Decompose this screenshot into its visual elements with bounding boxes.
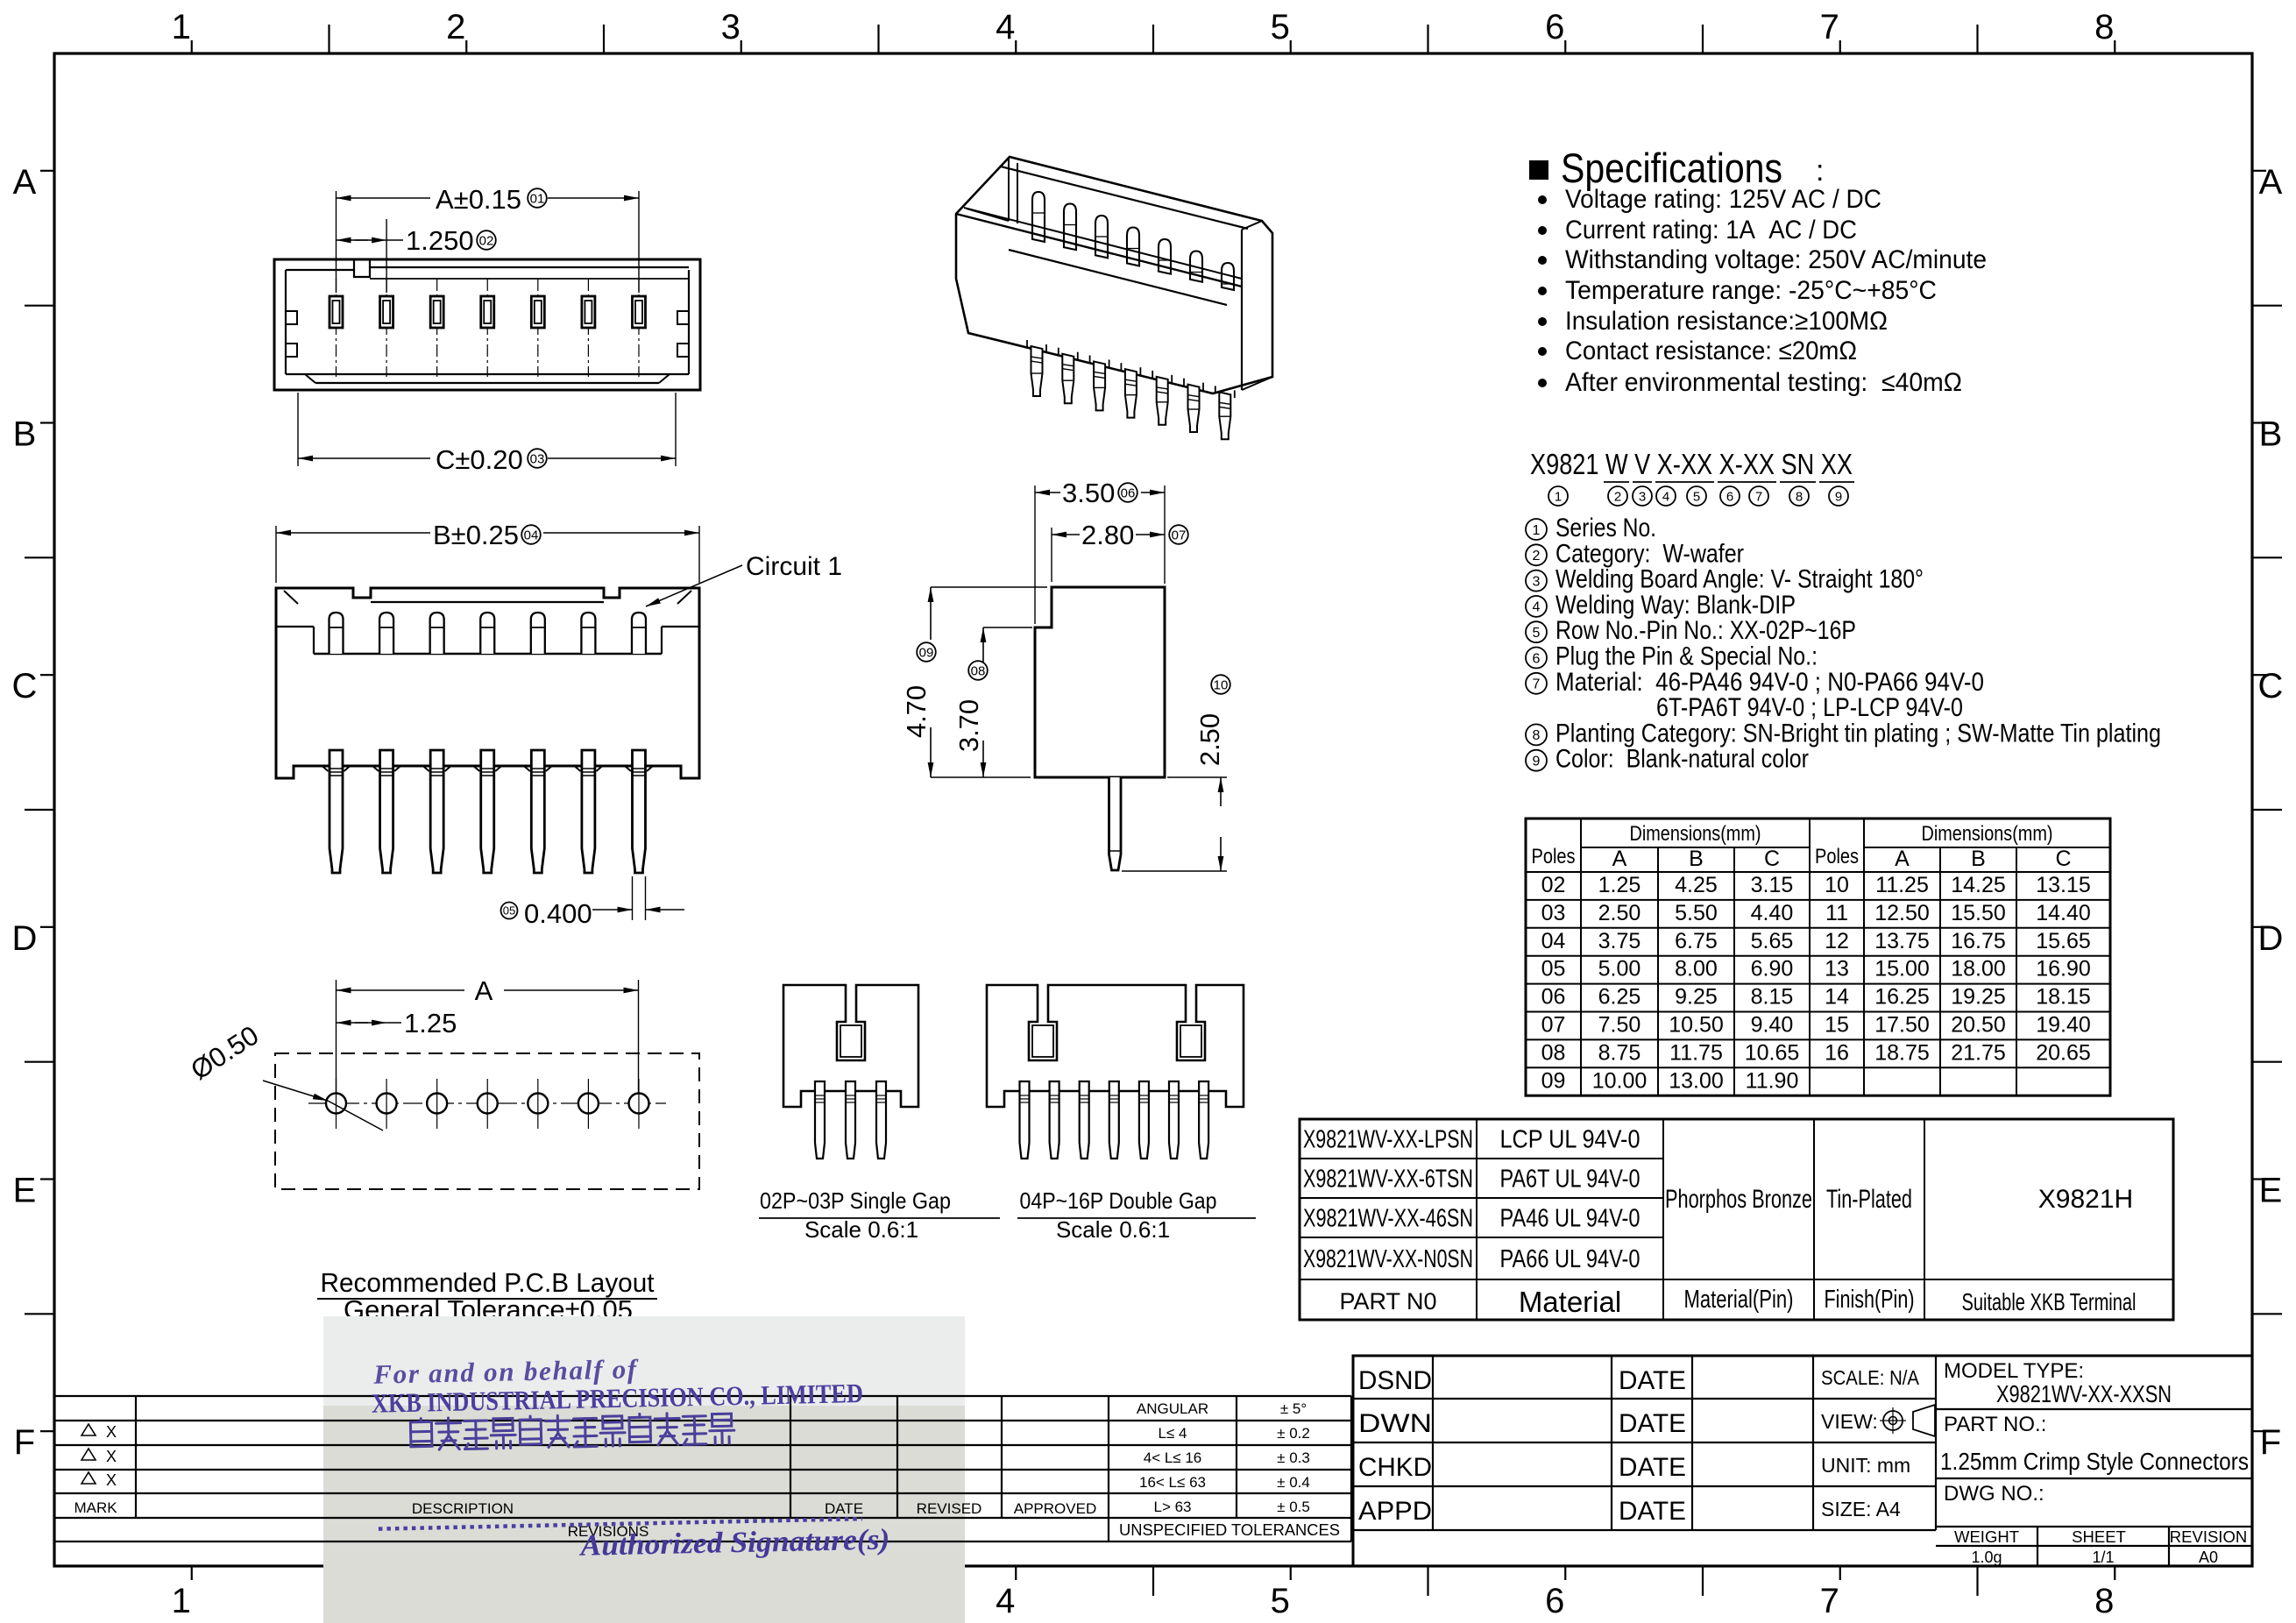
svg-text:WEIGHT: WEIGHT <box>1954 1527 2019 1546</box>
svg-text:DATE: DATE <box>825 1500 863 1517</box>
svg-text:Series No.: Series No. <box>1555 514 1656 542</box>
svg-text:17.50: 17.50 <box>1874 1013 1930 1038</box>
svg-text:Plug the Pin & Special No.:: Plug the Pin & Special No.: <box>1555 642 1818 671</box>
svg-text:20.65: 20.65 <box>2036 1040 2091 1065</box>
svg-text:± 0.3: ± 0.3 <box>1277 1449 1310 1466</box>
svg-text:Welding Way: Blank-DIP: Welding Way: Blank-DIP <box>1555 591 1796 620</box>
svg-text:DATE: DATE <box>1619 1366 1686 1395</box>
svg-text:12: 12 <box>1825 929 1849 953</box>
svg-text:4: 4 <box>1533 600 1541 615</box>
svg-text:6.90: 6.90 <box>1751 957 1794 982</box>
svg-text:10.65: 10.65 <box>1745 1040 1800 1065</box>
svg-text:C: C <box>2055 847 2071 871</box>
svg-text:APPROVED: APPROVED <box>1014 1500 1096 1517</box>
svg-text:3.75: 3.75 <box>1598 929 1641 953</box>
svg-text:Welding Board Angle: V- Straig: Welding Board Angle: V- Straight 180° <box>1555 565 1924 594</box>
svg-text:F: F <box>2260 1423 2281 1462</box>
svg-text:6: 6 <box>1545 8 1564 46</box>
svg-text:Dimensions(mm): Dimensions(mm) <box>1922 822 2053 846</box>
svg-text:1.250: 1.250 <box>406 225 474 256</box>
svg-text:Current rating: 1A AC / DC: Current rating: 1A AC / DC <box>1565 216 1857 245</box>
svg-text:2.80: 2.80 <box>1081 520 1134 550</box>
svg-text:2: 2 <box>1614 489 1621 504</box>
svg-text:MARK: MARK <box>74 1499 117 1516</box>
svg-text:1.25mm Crimp Style Connectors: 1.25mm Crimp Style Connectors <box>1940 1448 2249 1475</box>
svg-text:Material: 46-PA46 94V-0 ; N0: Material: 46-PA46 94V-0 ; N0-PA66 94V-0 <box>1555 668 1984 697</box>
svg-text:PA66 UL 94V-0: PA66 UL 94V-0 <box>1500 1245 1641 1273</box>
svg-text:VIEW:: VIEW: <box>1821 1410 1878 1433</box>
svg-text:5.50: 5.50 <box>1675 901 1718 925</box>
svg-text:2: 2 <box>1533 549 1541 563</box>
svg-text:A: A <box>13 163 37 202</box>
svg-text:07: 07 <box>1541 1013 1566 1038</box>
svg-text:Material(Pin): Material(Pin) <box>1684 1286 1794 1314</box>
svg-text:9.40: 9.40 <box>1751 1013 1794 1038</box>
svg-text:16.25: 16.25 <box>1874 985 1930 1010</box>
svg-text:08: 08 <box>1541 1040 1566 1065</box>
svg-text:F: F <box>14 1423 35 1462</box>
svg-text:D: D <box>12 919 38 958</box>
svg-text:11.25: 11.25 <box>1875 873 1929 897</box>
svg-text:UNIT: mm: UNIT: mm <box>1821 1454 1910 1477</box>
svg-text:8.75: 8.75 <box>1598 1040 1641 1065</box>
svg-text:X: X <box>106 1448 117 1465</box>
svg-text:10.00: 10.00 <box>1592 1068 1648 1093</box>
svg-text:DWN: DWN <box>1358 1409 1432 1438</box>
svg-text:21.75: 21.75 <box>1951 1040 2006 1065</box>
svg-text:After environmental testing:: After environmental testing: ≤40mΩ <box>1565 368 1962 397</box>
svg-text:1: 1 <box>1555 489 1562 504</box>
svg-text:Planting Category: SN-Bright: Planting Category: SN-Bright tin plating… <box>1555 719 2161 748</box>
svg-text:5.65: 5.65 <box>1751 929 1794 953</box>
svg-text:10: 10 <box>1825 873 1849 897</box>
svg-text:15: 15 <box>1825 1013 1849 1038</box>
svg-text:DATE: DATE <box>1619 1497 1686 1526</box>
svg-text:2.50: 2.50 <box>1598 901 1641 925</box>
svg-text:Temperature range: -25°C~+85°C: Temperature range: -25°C~+85°C <box>1565 276 1937 305</box>
svg-text:06: 06 <box>1121 485 1136 500</box>
svg-text:Finish(Pin): Finish(Pin) <box>1825 1286 1915 1314</box>
svg-text:12.50: 12.50 <box>1874 901 1930 925</box>
svg-text:Tin-Plated: Tin-Plated <box>1826 1185 1912 1214</box>
svg-text:8: 8 <box>2094 8 2114 46</box>
svg-text:8.15: 8.15 <box>1751 985 1794 1010</box>
svg-text:Suitable XKB Terminal: Suitable XKB Terminal <box>1962 1288 2137 1315</box>
svg-text:DATE: DATE <box>1619 1409 1686 1438</box>
svg-text:8.00: 8.00 <box>1675 957 1718 982</box>
svg-text:7: 7 <box>1755 489 1762 504</box>
svg-text:E: E <box>2259 1172 2283 1210</box>
svg-text:06: 06 <box>1541 985 1566 1010</box>
svg-text:4.40: 4.40 <box>1751 901 1794 925</box>
svg-text:7: 7 <box>1820 1582 1839 1620</box>
svg-text:05: 05 <box>1541 957 1566 982</box>
svg-text:3.70: 3.70 <box>953 699 984 752</box>
svg-text:10.50: 10.50 <box>1669 1013 1724 1038</box>
svg-text:± 0.2: ± 0.2 <box>1277 1425 1310 1442</box>
svg-text:C±0.20: C±0.20 <box>436 444 523 475</box>
svg-text:B: B <box>1689 847 1704 871</box>
svg-text:L> 63: L> 63 <box>1153 1499 1191 1515</box>
svg-text:6: 6 <box>1533 651 1541 666</box>
svg-text:Scale 0.6:1: Scale 0.6:1 <box>804 1216 918 1243</box>
svg-text:04: 04 <box>524 528 539 542</box>
svg-text:9.25: 9.25 <box>1675 985 1718 1010</box>
svg-text:X9821 W V X-XX X-XX SN XX: X9821 W V X-XX X-XX SN XX <box>1530 448 1853 480</box>
svg-text:4: 4 <box>996 1582 1015 1620</box>
svg-text:A0: A0 <box>2199 1549 2218 1566</box>
svg-text:16.75: 16.75 <box>1951 929 2006 953</box>
svg-text:6T-PA6T 94V-0 ; LP-LCP 94V-0: 6T-PA6T 94V-0 ; LP-LCP 94V-0 <box>1656 693 1963 722</box>
svg-text:09: 09 <box>919 645 934 660</box>
svg-text:3.15: 3.15 <box>1751 873 1794 897</box>
svg-text:7: 7 <box>1820 8 1839 46</box>
svg-text:4.70: 4.70 <box>901 685 932 738</box>
svg-text:16.90: 16.90 <box>2036 957 2091 982</box>
svg-text:4.25: 4.25 <box>1675 873 1718 897</box>
svg-text:02: 02 <box>479 233 494 248</box>
svg-text:5.00: 5.00 <box>1598 957 1641 982</box>
svg-text:18.00: 18.00 <box>1951 957 2006 982</box>
svg-text:L≤ 4: L≤ 4 <box>1159 1425 1187 1442</box>
svg-text:Color: Blank-natural color: Color: Blank-natural color <box>1555 745 1809 774</box>
svg-text:Voltage rating: 125V AC / DC: Voltage rating: 125V AC / DC <box>1565 185 1881 214</box>
svg-text:A: A <box>1612 847 1627 871</box>
svg-text:A: A <box>2259 163 2283 202</box>
svg-text:X9821WV-XX-46SN: X9821WV-XX-46SN <box>1303 1205 1473 1233</box>
svg-text:A: A <box>475 975 493 1006</box>
svg-text:SIZE: A4: SIZE: A4 <box>1821 1498 1901 1520</box>
svg-text:DESCRIPTION: DESCRIPTION <box>412 1500 514 1517</box>
svg-text:8: 8 <box>1533 728 1541 743</box>
svg-text:03: 03 <box>530 451 545 466</box>
svg-text:14.40: 14.40 <box>2036 901 2091 925</box>
svg-text:05: 05 <box>503 904 515 918</box>
svg-text:B: B <box>2259 415 2283 454</box>
svg-text:2: 2 <box>446 8 465 46</box>
svg-text:04P~16P Double Gap: 04P~16P Double Gap <box>1020 1187 1217 1214</box>
svg-text:1: 1 <box>1533 523 1541 538</box>
svg-text:3: 3 <box>1533 574 1541 589</box>
svg-text:X9821WV-XX-XXSN: X9821WV-XX-XXSN <box>1996 1380 2172 1407</box>
svg-text:18.15: 18.15 <box>2036 985 2091 1010</box>
svg-text:6.25: 6.25 <box>1598 985 1641 1010</box>
svg-text:DSND: DSND <box>1358 1366 1432 1395</box>
svg-text:Scale 0.6:1: Scale 0.6:1 <box>1056 1216 1170 1243</box>
svg-text:APPD: APPD <box>1358 1497 1432 1526</box>
svg-text:MODEL TYPE:: MODEL TYPE: <box>1944 1359 2084 1383</box>
svg-text:15.50: 15.50 <box>1951 901 2006 925</box>
svg-text:X9821WV-XX-6TSN: X9821WV-XX-6TSN <box>1303 1166 1473 1194</box>
svg-text:02P~03P Single Gap: 02P~03P Single Gap <box>760 1187 951 1214</box>
svg-text:Withstanding voltage: 250V AC/: Withstanding voltage: 250V AC/minute <box>1565 245 1987 274</box>
svg-text:4: 4 <box>996 8 1015 46</box>
svg-text:1.25: 1.25 <box>404 1008 457 1038</box>
svg-text:6: 6 <box>1726 489 1733 504</box>
svg-text:3.50: 3.50 <box>1062 478 1115 508</box>
svg-text:C: C <box>2258 667 2284 705</box>
svg-text:14.25: 14.25 <box>1951 873 2006 897</box>
svg-text:X9821WV-XX-LPSN: X9821WV-XX-LPSN <box>1303 1126 1473 1154</box>
svg-text:15.65: 15.65 <box>2036 929 2091 953</box>
svg-text:PA6T UL 94V-0: PA6T UL 94V-0 <box>1500 1166 1641 1194</box>
svg-text:± 0.5: ± 0.5 <box>1277 1499 1310 1515</box>
svg-text:13.00: 13.00 <box>1669 1068 1724 1093</box>
svg-text:E: E <box>13 1172 37 1210</box>
svg-text:REVISION: REVISION <box>2170 1527 2247 1546</box>
svg-text:8: 8 <box>1796 489 1803 504</box>
svg-text:13: 13 <box>1825 957 1849 982</box>
svg-text:X9821WV-XX-N0SN: X9821WV-XX-N0SN <box>1303 1245 1473 1273</box>
svg-text:11.75: 11.75 <box>1669 1040 1723 1065</box>
svg-text:ANGULAR: ANGULAR <box>1137 1400 1208 1417</box>
svg-text:Phorphos Bronze: Phorphos Bronze <box>1665 1185 1812 1214</box>
svg-text:8: 8 <box>2094 1582 2114 1620</box>
svg-text:PA46 UL 94V-0: PA46 UL 94V-0 <box>1500 1205 1641 1233</box>
svg-text:Poles: Poles <box>1532 845 1576 868</box>
svg-text:5: 5 <box>1271 1582 1290 1620</box>
svg-text:5: 5 <box>1533 626 1541 641</box>
svg-text:Contact resistance: ≤20mΩ: Contact resistance: ≤20mΩ <box>1565 337 1857 365</box>
svg-text:6: 6 <box>1545 1582 1564 1620</box>
svg-text::: : <box>1816 154 1824 188</box>
svg-text:A±0.15: A±0.15 <box>436 184 521 215</box>
svg-text:REVISED: REVISED <box>917 1500 982 1517</box>
svg-text:0.400: 0.400 <box>524 898 592 929</box>
svg-text:9: 9 <box>1533 754 1541 769</box>
svg-text:X: X <box>106 1423 117 1441</box>
svg-text:Poles: Poles <box>1815 845 1859 868</box>
svg-text:01: 01 <box>530 191 545 206</box>
svg-text:Insulation resistance:≥100MΩ: Insulation resistance:≥100MΩ <box>1565 307 1888 336</box>
svg-text:± 5°: ± 5° <box>1280 1400 1307 1417</box>
svg-text:15.00: 15.00 <box>1874 957 1930 982</box>
svg-text:07: 07 <box>1172 528 1187 542</box>
svg-text:3: 3 <box>721 8 741 46</box>
svg-text:Dimensions(mm): Dimensions(mm) <box>1630 822 1761 846</box>
svg-text:LCP UL 94V-0: LCP UL 94V-0 <box>1500 1126 1641 1154</box>
svg-text:02: 02 <box>1541 873 1566 897</box>
svg-text:13.75: 13.75 <box>1874 929 1930 953</box>
svg-text:SCALE: N/A: SCALE: N/A <box>1821 1366 1920 1389</box>
svg-text:UNSPECIFIED TOLERANCES: UNSPECIFIED TOLERANCES <box>1119 1521 1340 1539</box>
svg-text:D: D <box>2258 919 2284 958</box>
svg-text:09: 09 <box>1541 1068 1566 1093</box>
svg-text:4: 4 <box>1662 489 1669 504</box>
svg-text:X: X <box>106 1471 117 1489</box>
svg-text:16< L≤ 63: 16< L≤ 63 <box>1139 1474 1206 1491</box>
svg-text:C: C <box>12 667 38 705</box>
svg-text:9: 9 <box>1835 489 1842 504</box>
svg-text:18.75: 18.75 <box>1874 1040 1930 1065</box>
svg-text:5: 5 <box>1693 489 1700 504</box>
svg-text:Row No.-Pin No.: XX-02P~16P: Row No.-Pin No.: XX-02P~16P <box>1555 616 1856 645</box>
svg-text:X9821H: X9821H <box>2038 1185 2133 1214</box>
svg-text:11.90: 11.90 <box>1746 1068 1799 1093</box>
svg-text:3: 3 <box>1639 489 1646 504</box>
svg-text:14: 14 <box>1825 985 1849 1010</box>
svg-text:03: 03 <box>1541 901 1566 925</box>
svg-text:7.50: 7.50 <box>1598 1013 1641 1038</box>
svg-text:CHKD: CHKD <box>1358 1453 1432 1482</box>
svg-text:B: B <box>13 415 37 454</box>
svg-text:A: A <box>1895 847 1910 871</box>
svg-text:08: 08 <box>971 663 986 678</box>
svg-text:DWG NO.:: DWG NO.: <box>1944 1482 2044 1506</box>
svg-text:6.75: 6.75 <box>1675 929 1718 953</box>
svg-text:10: 10 <box>1214 677 1229 692</box>
svg-text:1.0g: 1.0g <box>1971 1549 2002 1566</box>
svg-text:7: 7 <box>1533 677 1541 692</box>
svg-text:B: B <box>1971 847 1986 871</box>
svg-text:1: 1 <box>172 1582 191 1620</box>
svg-text:16: 16 <box>1825 1040 1849 1065</box>
svg-text:11: 11 <box>1825 901 1848 925</box>
svg-text:04: 04 <box>1541 929 1566 953</box>
svg-text:1/1: 1/1 <box>2092 1549 2114 1566</box>
svg-text:B±0.25: B±0.25 <box>433 520 519 550</box>
svg-text:Authorized Signature(s): Authorized Signature(s) <box>578 1523 890 1562</box>
svg-text:SHEET: SHEET <box>2072 1527 2126 1546</box>
svg-text:C: C <box>1764 847 1780 871</box>
svg-text:Category: W-wafer: Category: W-wafer <box>1555 539 1744 568</box>
svg-text:2.50: 2.50 <box>1194 713 1225 766</box>
svg-text:1.25: 1.25 <box>1598 873 1641 897</box>
svg-text:1: 1 <box>172 8 191 46</box>
svg-text:13.15: 13.15 <box>2036 873 2091 897</box>
svg-text:Recommended P.C.B Layout: Recommended P.C.B Layout <box>321 1267 655 1298</box>
svg-text:PART N0: PART N0 <box>1339 1288 1436 1315</box>
svg-text:20.50: 20.50 <box>1951 1013 2006 1038</box>
svg-text:Circuit 1: Circuit 1 <box>746 552 842 581</box>
svg-text:± 0.4: ± 0.4 <box>1277 1474 1310 1491</box>
svg-text:PART NO.:: PART NO.: <box>1944 1413 2046 1436</box>
svg-text:4< L≤ 16: 4< L≤ 16 <box>1144 1449 1202 1466</box>
svg-text:19.25: 19.25 <box>1951 985 2006 1010</box>
svg-text:19.40: 19.40 <box>2036 1013 2091 1038</box>
svg-text:5: 5 <box>1271 8 1290 46</box>
svg-text:DATE: DATE <box>1619 1453 1686 1482</box>
svg-text:Material: Material <box>1519 1286 1621 1318</box>
